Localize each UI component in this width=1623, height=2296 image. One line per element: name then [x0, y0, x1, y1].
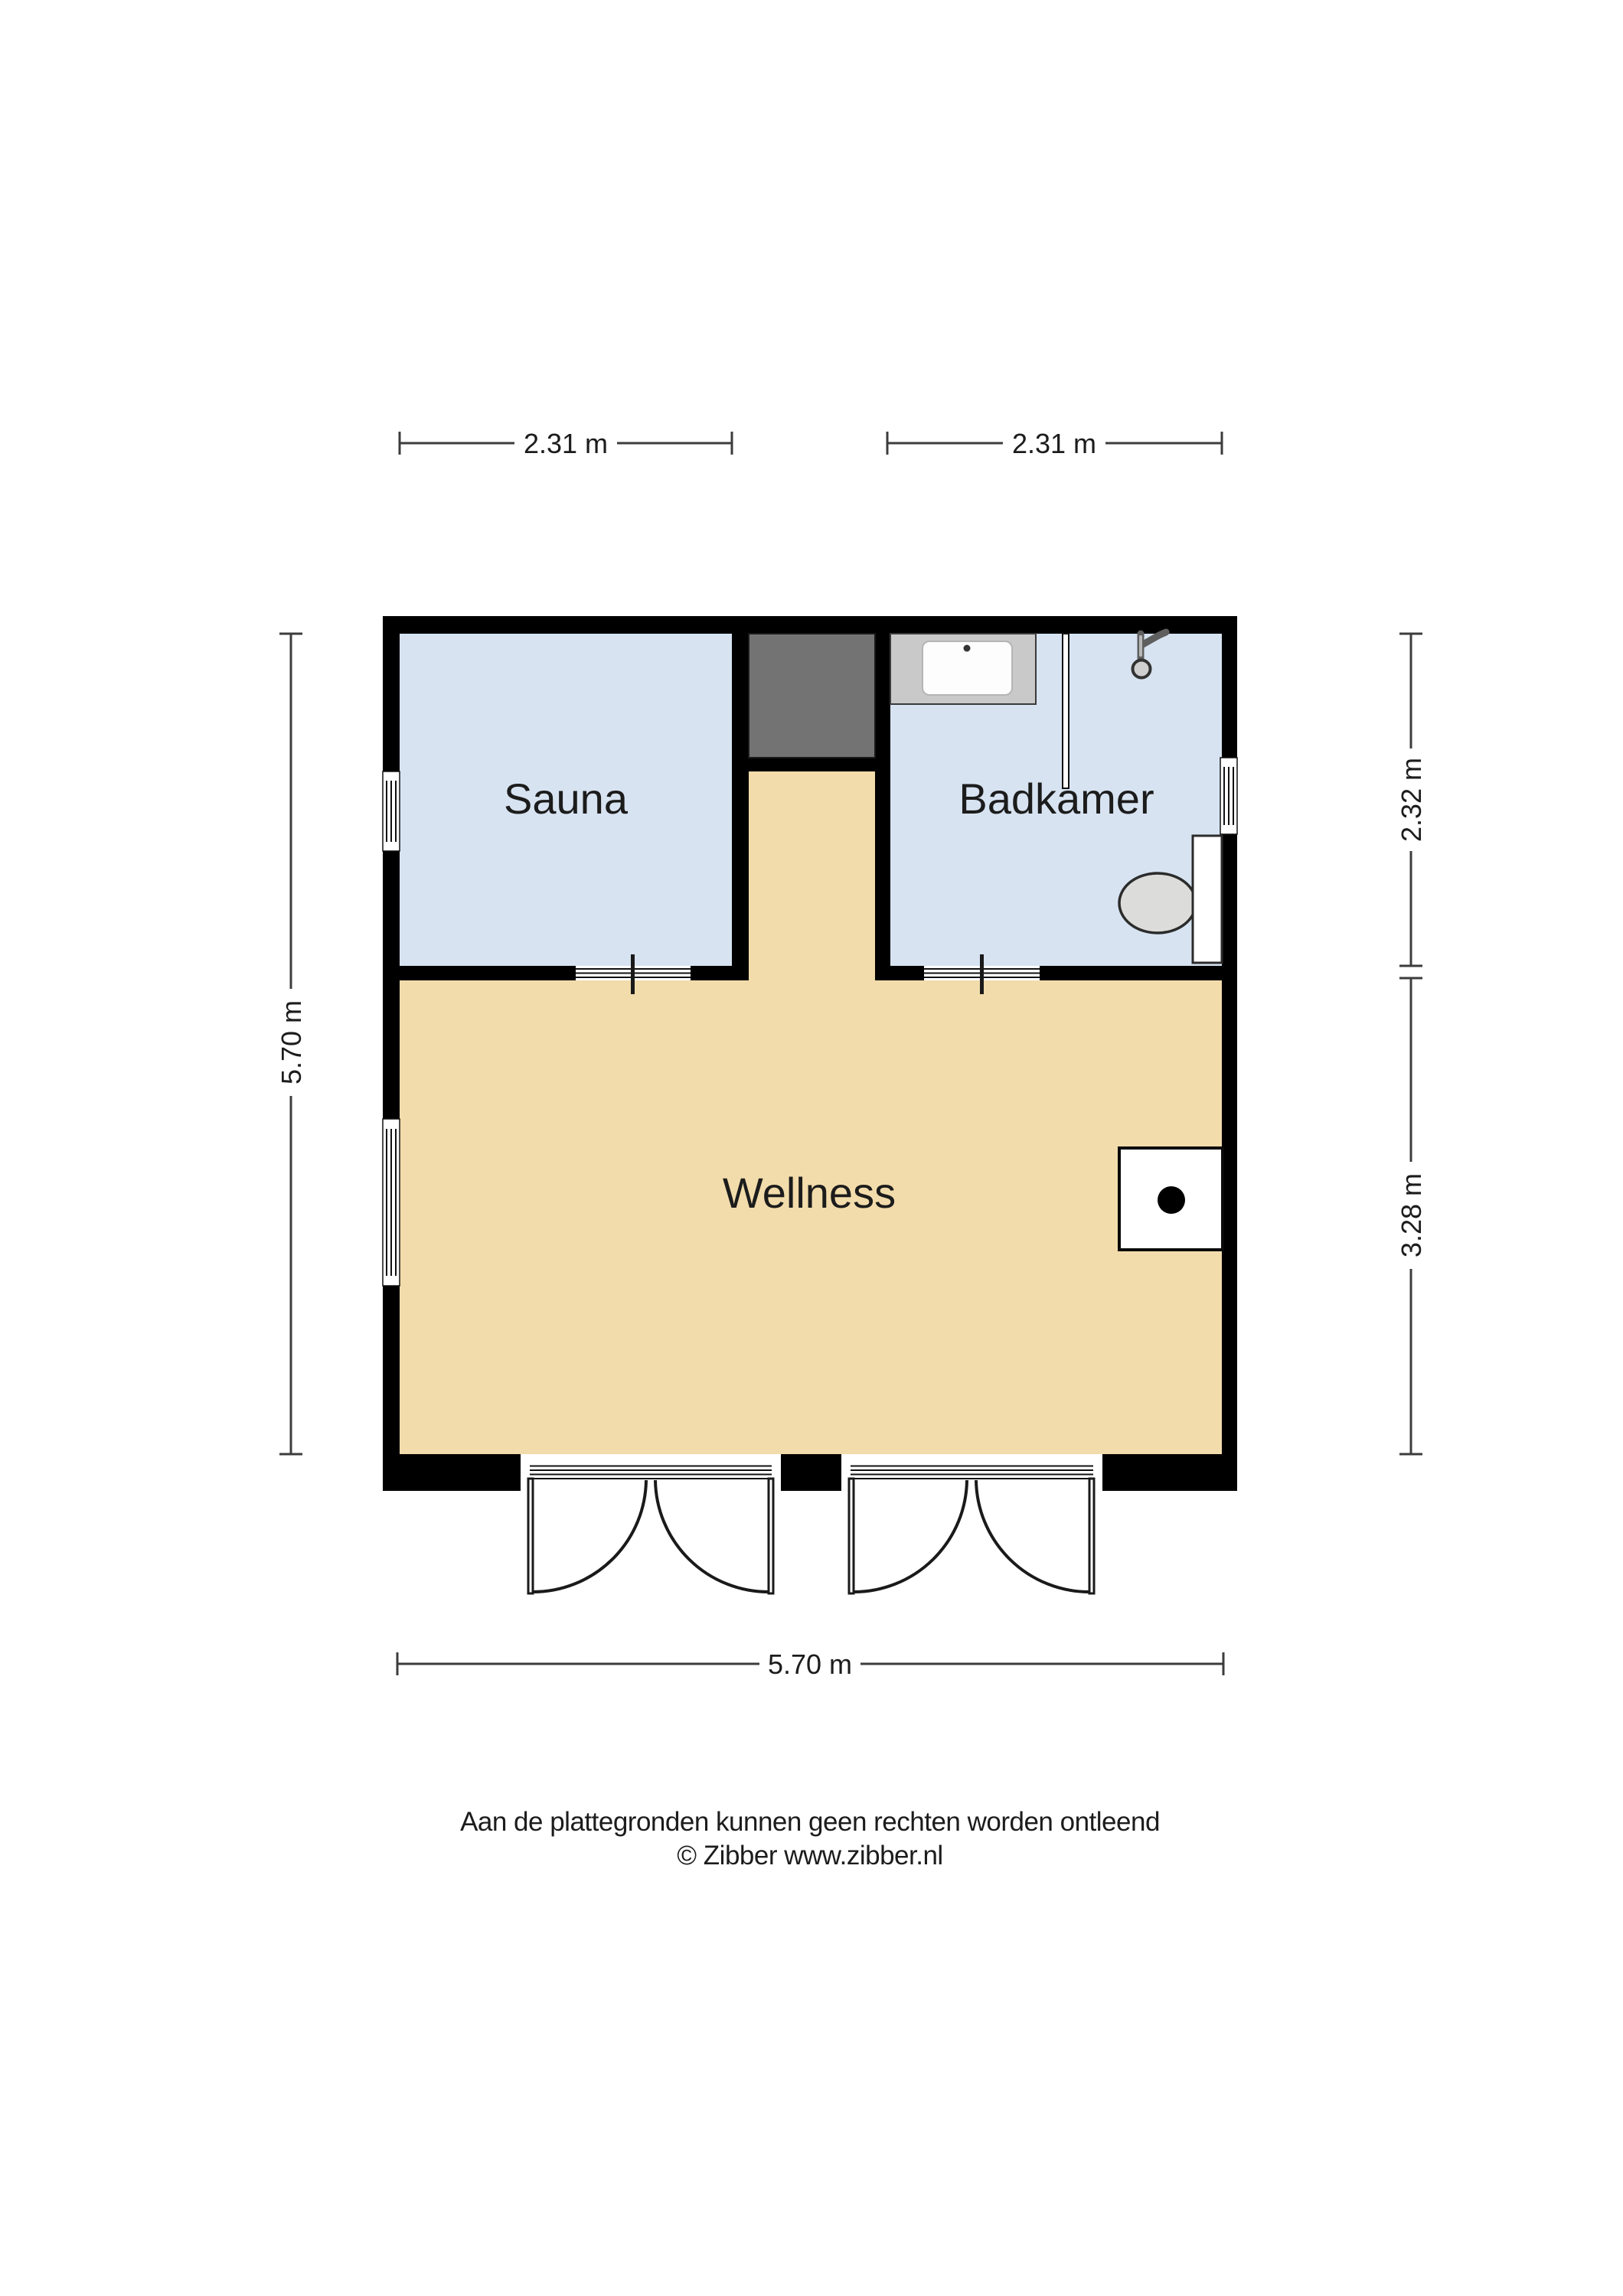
door-swing-arc	[854, 1480, 967, 1592]
double-door-left	[521, 1454, 781, 1593]
shower-screen	[1063, 634, 1069, 788]
door-leaf	[849, 1479, 854, 1593]
door-leaf	[528, 1479, 533, 1593]
door-leaf	[1089, 1479, 1094, 1593]
room-label-sauna: Sauna	[504, 775, 629, 823]
badkamer-window	[1220, 758, 1237, 834]
shower-drain	[964, 645, 971, 652]
wellness-floor	[400, 980, 1222, 1454]
footer-disclaimer: Aan de plattegronden kunnen geen rechten…	[460, 1807, 1160, 1837]
toilet-cistern	[1193, 836, 1222, 963]
dim-left: 5.70 m	[276, 634, 307, 1454]
footer-copyright: © Zibber www.zibber.nl	[677, 1841, 942, 1870]
floorplan-canvas: Sauna Badkamer Wellness 2.31 m 2.31 m 5.…	[0, 0, 1623, 2296]
sauna-window	[383, 771, 400, 851]
dim-top-right: 2.31 m	[887, 428, 1222, 459]
dim-label: 5.70 m	[276, 1000, 307, 1084]
dim-label: 5.70 m	[768, 1649, 852, 1680]
door-swing-arc	[533, 1480, 646, 1592]
room-label-badkamer: Badkamer	[958, 775, 1154, 823]
dim-right-top: 2.32 m	[1396, 634, 1427, 966]
dim-label: 2.32 m	[1396, 758, 1427, 842]
dim-label: 2.31 m	[524, 428, 608, 459]
dim-top-left: 2.31 m	[400, 428, 732, 459]
floorplan-page: Sauna Badkamer Wellness 2.31 m 2.31 m 5.…	[0, 0, 1623, 2296]
wellness-window	[383, 1119, 400, 1286]
corridor-floor	[749, 771, 875, 986]
door-leaf	[769, 1479, 773, 1593]
door-pivot	[631, 954, 635, 994]
building	[383, 616, 1237, 1491]
door-pivot	[980, 954, 984, 994]
stove	[1119, 1148, 1223, 1250]
dim-label: 2.31 m	[1012, 428, 1096, 459]
chimney	[749, 634, 875, 758]
stove-dot	[1158, 1186, 1185, 1214]
toilet-bowl	[1119, 873, 1196, 933]
room-label-wellness: Wellness	[723, 1169, 896, 1217]
dim-bottom: 5.70 m	[397, 1649, 1223, 1680]
door-swing-arc	[976, 1480, 1089, 1592]
double-door-right	[841, 1454, 1102, 1593]
dim-right-bottom: 3.28 m	[1396, 978, 1427, 1454]
door-swing-arc	[655, 1480, 769, 1592]
dim-label: 3.28 m	[1396, 1173, 1427, 1257]
